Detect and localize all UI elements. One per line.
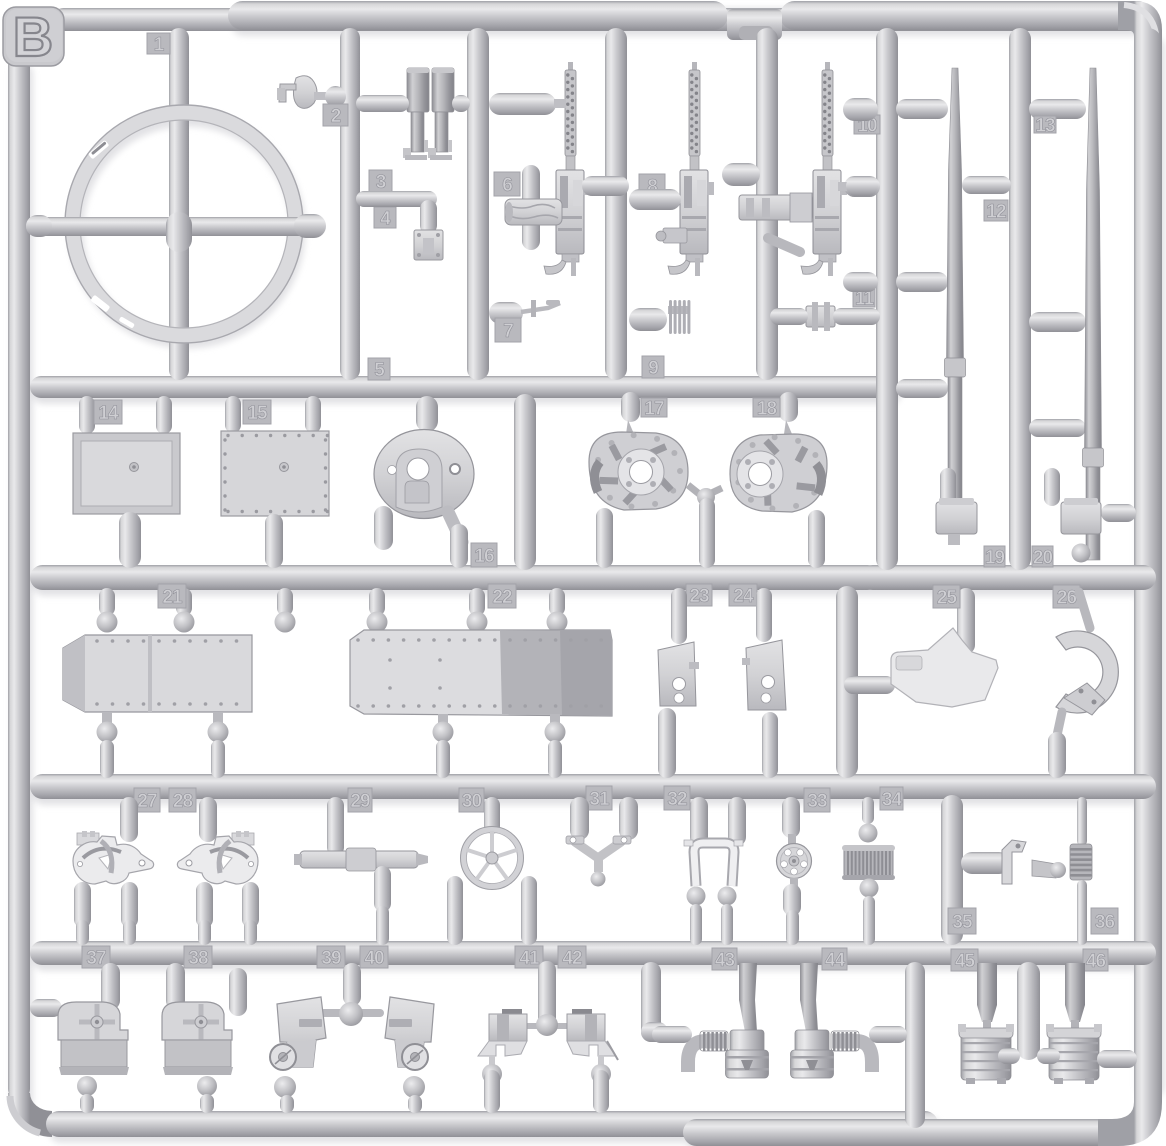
svg-text:25: 25	[937, 588, 958, 609]
svg-text:21: 21	[162, 587, 183, 608]
svg-text:32: 32	[667, 789, 687, 810]
svg-text:12: 12	[986, 202, 1006, 223]
svg-text:46: 46	[1086, 951, 1106, 972]
svg-text:38: 38	[188, 948, 208, 969]
svg-text:37: 37	[86, 948, 106, 969]
svg-text:20: 20	[1033, 548, 1053, 569]
svg-text:13: 13	[1035, 116, 1055, 137]
svg-text:3: 3	[376, 172, 386, 193]
svg-text:31: 31	[589, 789, 610, 810]
svg-text:27: 27	[137, 791, 157, 812]
svg-text:35: 35	[952, 912, 973, 933]
svg-text:29: 29	[350, 791, 370, 812]
svg-text:22: 22	[492, 587, 512, 608]
svg-text:28: 28	[173, 791, 193, 812]
svg-text:6: 6	[502, 175, 512, 196]
svg-text:45: 45	[955, 951, 976, 972]
svg-text:5: 5	[374, 360, 385, 381]
svg-text:9: 9	[648, 358, 658, 379]
svg-text:7: 7	[503, 321, 513, 342]
svg-text:34: 34	[882, 790, 903, 811]
svg-text:19: 19	[985, 548, 1005, 569]
svg-text:26: 26	[1057, 588, 1077, 609]
svg-text:B: B	[13, 5, 53, 68]
svg-text:18: 18	[757, 399, 777, 420]
svg-text:2: 2	[331, 106, 341, 127]
svg-text:1: 1	[154, 35, 165, 56]
svg-text:39: 39	[321, 948, 341, 969]
svg-text:44: 44	[825, 950, 846, 971]
svg-text:23: 23	[689, 586, 709, 607]
svg-text:14: 14	[98, 403, 119, 424]
svg-text:42: 42	[562, 948, 582, 969]
svg-text:43: 43	[715, 950, 735, 971]
svg-text:15: 15	[247, 403, 268, 424]
svg-text:33: 33	[807, 791, 827, 812]
svg-text:24: 24	[733, 586, 754, 607]
svg-text:40: 40	[364, 948, 384, 969]
svg-text:36: 36	[1095, 912, 1115, 933]
svg-text:41: 41	[519, 948, 540, 969]
svg-text:30: 30	[462, 791, 482, 812]
svg-text:16: 16	[474, 546, 494, 567]
svg-text:4: 4	[380, 209, 391, 230]
svg-text:17: 17	[644, 399, 664, 420]
